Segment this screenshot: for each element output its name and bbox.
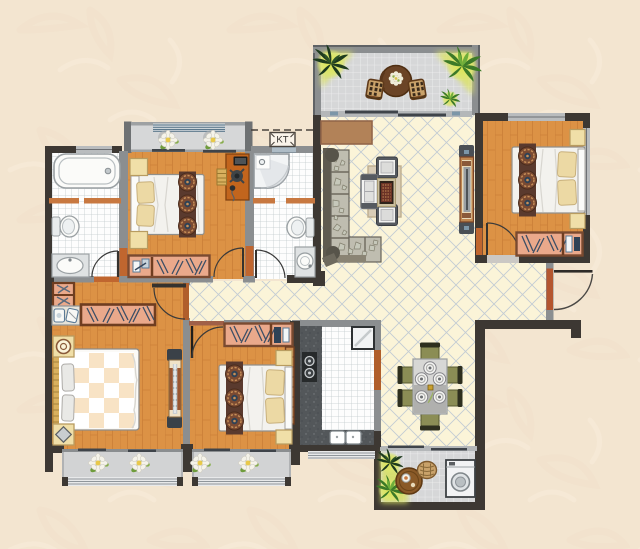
svg-text:KT: KT — [276, 135, 288, 146]
